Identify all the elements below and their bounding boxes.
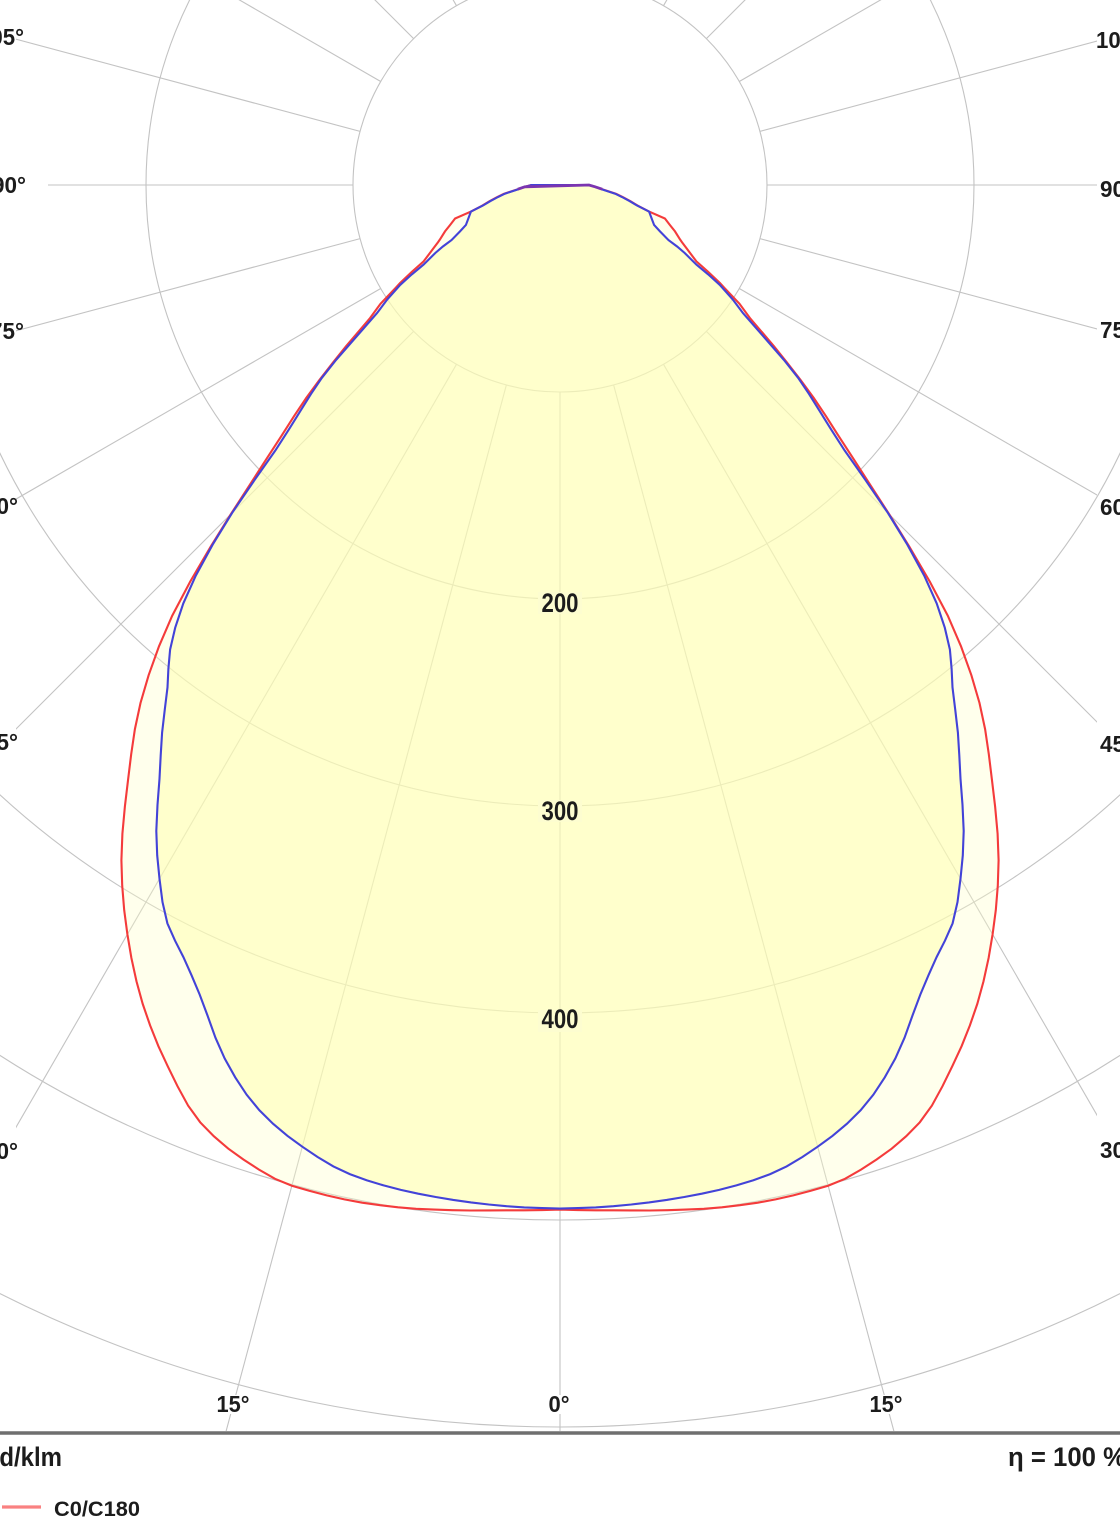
svg-text:200: 200 [542,588,579,618]
svg-text:45°: 45° [0,729,18,755]
svg-text:60°: 60° [0,493,18,519]
svg-text:15°: 15° [217,1391,250,1417]
svg-text:30°: 30° [0,1138,18,1164]
svg-text:30°: 30° [1100,1137,1120,1163]
svg-text:cd/klm: cd/klm [0,1442,62,1472]
svg-text:105°: 105° [0,24,24,50]
svg-text:60°: 60° [1100,494,1120,520]
svg-text:75°: 75° [1100,317,1120,343]
svg-text:400: 400 [542,1004,579,1034]
svg-text:105°: 105° [1096,27,1120,53]
svg-text:75°: 75° [0,318,24,344]
svg-text:C0/C180: C0/C180 [54,1498,140,1521]
svg-text:η = 100 %: η = 100 % [1008,1442,1120,1472]
svg-text:90°: 90° [0,172,26,198]
svg-text:45°: 45° [1100,731,1120,757]
svg-text:0°: 0° [549,1391,570,1417]
svg-text:90°: 90° [1100,176,1120,202]
svg-text:300: 300 [542,796,579,826]
svg-text:15°: 15° [870,1391,903,1417]
